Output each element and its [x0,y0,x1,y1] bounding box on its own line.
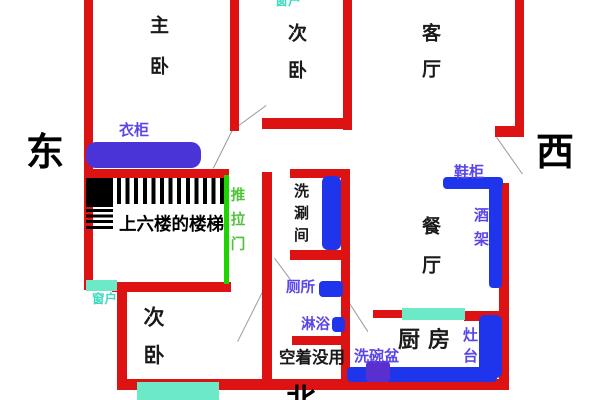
room-label-living-room: 客厅 [420,23,439,95]
compass-west: 西 [536,134,574,172]
wall-outer-right-top [515,0,524,132]
compass-north: 北 [286,386,316,400]
door-swing-entrance [496,137,523,174]
label-wardrobe: 衣柜 [119,123,149,138]
stove [479,315,502,378]
wall-corridor-left [262,172,272,388]
wall-kitchen-top-left [373,310,404,318]
room-label-washroom: 洗涮间 [293,183,308,249]
toilet-fixture [319,281,343,297]
label-window-bottom-left: 窗户 [92,293,117,306]
door-swing-toilet [274,258,292,282]
wall-shower-bottom [292,336,344,345]
label-toilet: 厕所 [286,281,315,296]
stairs-lower-treads [86,209,113,229]
window-kitchen [402,308,465,320]
stairs-upper-treads [117,178,228,204]
wall-bed2-living-divider [343,0,352,130]
room-label-master-bedroom: 主卧 [148,15,167,97]
wall-entrance-stub [495,126,524,137]
wall-bed3-left [117,288,127,388]
stairs-landing-block [86,178,113,207]
label-shoe-cabinet: 鞋柜 [454,165,484,180]
label-dish-sink: 洗碗盆 [354,349,399,364]
room-label-kitchen: 厨房 [398,329,458,351]
door-swing-master [213,130,233,169]
shower-fixture [332,317,345,332]
label-stove: 灶台 [462,327,477,369]
room-label-unused-space: 空着没用 [279,350,345,367]
window-left-bed3 [86,280,117,291]
washing-machine [322,176,341,250]
label-wine-rack: 酒架 [473,207,488,255]
wall-master-right [230,0,239,131]
wall-washroom-top [290,169,350,178]
window-bottom-bed3 [137,382,219,400]
wall-bed3-top [112,282,231,292]
room-label-second-bedroom-bottom: 次卧 [142,306,163,382]
compass-east: 东 [26,134,64,172]
stairs-label: 上六楼的楼梯 [119,216,224,234]
room-label-second-bedroom-top: 次卧 [286,23,305,97]
label-window-top: 窗户 [275,0,301,7]
sliding-door-label: 推拉门 [229,187,244,261]
wardrobe [86,142,201,168]
wall-washroom-bottom [290,250,344,260]
wall-hall-stub [262,118,351,129]
room-label-dining-room: 餐厅 [420,216,439,294]
label-shower: 淋浴 [301,318,330,333]
floorplan-canvas: 上六楼的楼梯 推拉门 东 西 北 主卧 次卧 客厅 餐厅 次卧 厨房 空着没用 … [0,0,600,400]
wall-stairs-top [84,169,229,178]
wine-rack [489,177,502,288]
